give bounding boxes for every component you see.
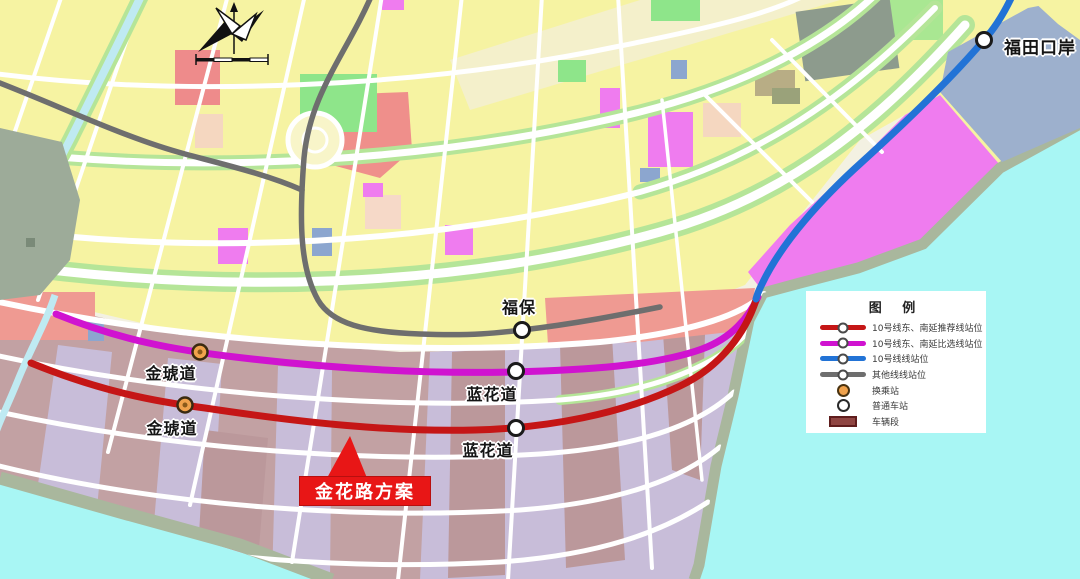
station-dot-lanhuadao-alternative	[509, 364, 524, 379]
stadium-ring-road	[288, 113, 342, 167]
station-dot-futian-checkpoint	[977, 33, 992, 48]
station-label-lanhuadao-recommended: 蓝花道	[462, 437, 513, 461]
park-structure	[26, 238, 35, 247]
legend-row-recommended: 10号线东、南延推荐线站位	[814, 320, 978, 336]
transfer-dot-jinhudao-recommended	[178, 398, 193, 413]
legend-panel: 图 例 10号线东、南延推荐线站位 10号线东、南延比选线站位 10号线线站位 …	[806, 291, 986, 433]
station-label-futian-checkpoint: 福田口岸	[1004, 34, 1076, 59]
legend-row-line10: 10号线线站位	[814, 351, 978, 367]
legend-row-regular-station: 普通车站	[814, 398, 978, 414]
station-label-jinhudao-recommended: 金琥道	[146, 415, 197, 439]
planning-map: 福田口岸 福保 金琥道 金琥道 蓝花道 蓝花道 金花路方案 图 例 10号线东、…	[0, 0, 1080, 579]
transfer-station-swatch	[837, 384, 850, 397]
station-label-fubao: 福保	[502, 294, 536, 318]
legend-label: 换乘站	[872, 384, 899, 397]
station-dot-fubao	[515, 323, 530, 338]
legend-title: 图 例	[814, 297, 978, 316]
station-label-lanhuadao-alternative: 蓝花道	[466, 381, 517, 405]
legend-row-other-lines: 其他线线站位	[814, 367, 978, 383]
station-dot-lanhuadao-recommended	[509, 421, 524, 436]
regular-station-swatch	[837, 399, 850, 412]
alternative-line-swatch	[820, 341, 866, 346]
legend-label: 车辆段	[872, 415, 899, 428]
legend-label: 其他线线站位	[872, 368, 926, 381]
station-label-jinhudao-alternative: 金琥道	[145, 360, 196, 384]
legend-row-transfer-station: 换乘站	[814, 382, 978, 398]
legend-label: 10号线东、南延比选线站位	[872, 337, 982, 350]
legend-label: 普通车站	[872, 399, 908, 412]
recommended-line-swatch	[820, 325, 866, 330]
legend-label: 10号线东、南延推荐线站位	[872, 321, 982, 334]
transfer-dot-jinhudao-alternative	[193, 345, 208, 360]
line10-swatch	[820, 356, 866, 361]
legend-label: 10号线线站位	[872, 352, 928, 365]
callout-jinhua-road-plan: 金花路方案	[299, 476, 431, 506]
legend-row-depot: 车辆段	[814, 414, 978, 430]
depot-swatch	[829, 416, 857, 427]
map-canvas	[0, 0, 1080, 579]
legend-row-alternative: 10号线东、南延比选线站位	[814, 336, 978, 352]
other-line-swatch	[820, 372, 866, 377]
